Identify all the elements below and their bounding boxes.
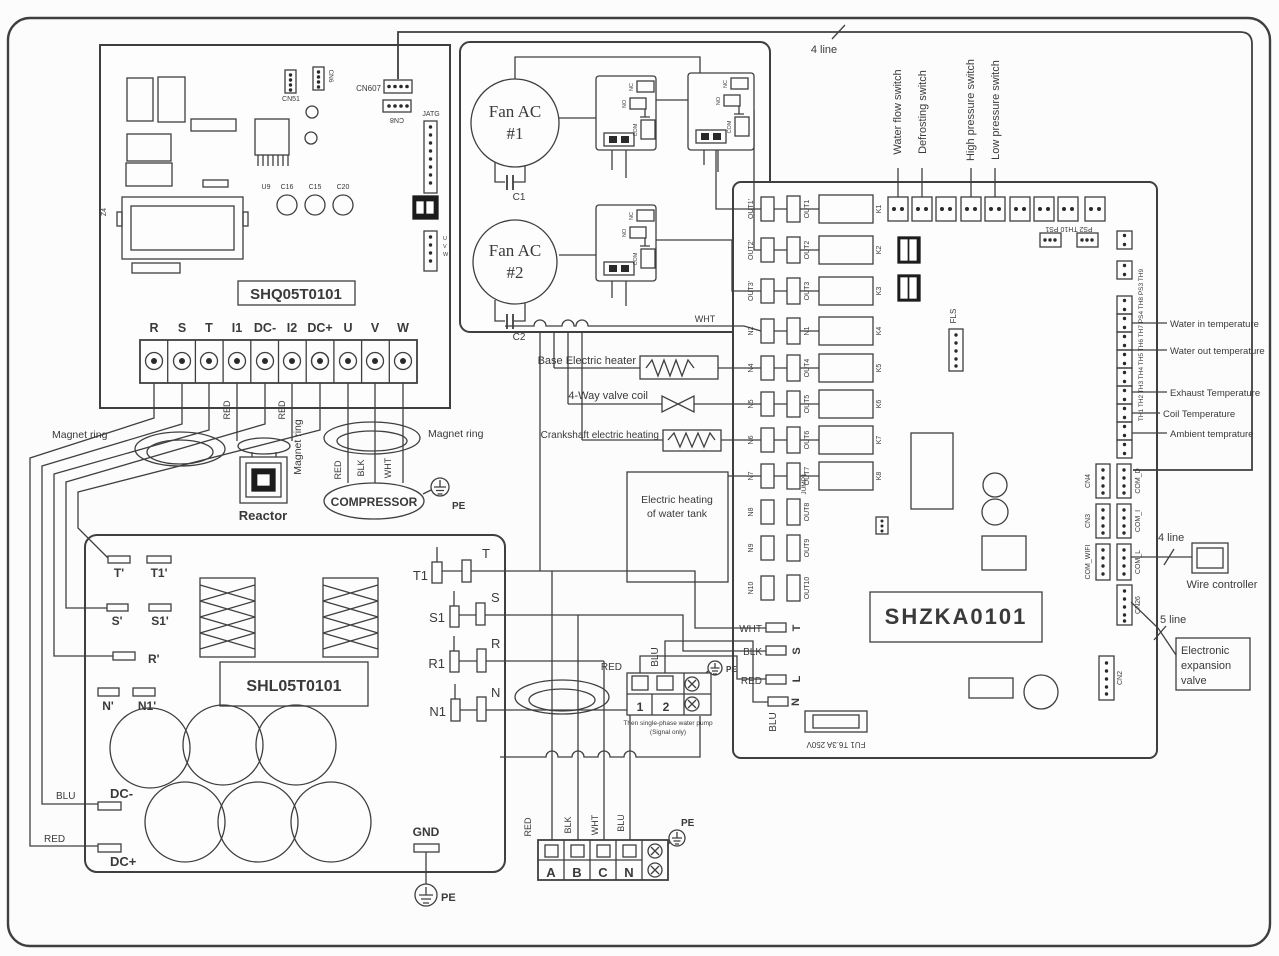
row-label: N8	[748, 507, 755, 516]
valve-symbol	[662, 396, 678, 412]
magnet-ring-pump-inner	[529, 689, 595, 711]
inlet-a: A	[546, 865, 556, 880]
label-coil: Coil Temperature	[1163, 409, 1235, 420]
label-wht-comp: WHT	[383, 457, 393, 478]
strip-label-i2: I2	[287, 321, 297, 335]
label-4way-valve: 4-Way valve coil	[568, 390, 648, 402]
label-cn2: CN2	[1117, 671, 1124, 685]
label-s-prime: S'	[112, 614, 123, 628]
label-cn607: CN607	[356, 84, 381, 93]
label-4line-right: 4 line	[1158, 532, 1184, 544]
label-exhaust: Exhaust Temperature	[1170, 388, 1260, 399]
label-pe-gnd: PE	[441, 892, 456, 904]
label-reactor: Reactor	[239, 508, 287, 523]
label-base-heater: Base Electric heater	[538, 355, 637, 367]
label-cn6: CN6	[327, 69, 334, 82]
label-fan1: Fan AC	[489, 102, 541, 121]
label-t-fuse: T	[482, 546, 490, 561]
label-z4: Z4	[101, 208, 108, 216]
label-u: U	[443, 236, 447, 242]
label-magnet-ring-center: Magnet ring	[292, 419, 304, 475]
label-t1-fuse: T1	[413, 568, 428, 583]
label-eev-1: Electronic	[1181, 645, 1230, 657]
pump-terminal-2: 2	[663, 700, 670, 714]
label-tank-2: of water tank	[647, 508, 708, 520]
fan-2	[473, 220, 557, 304]
label-no: NO	[716, 96, 722, 105]
label-blu-inlet: BLU	[616, 814, 626, 832]
label-t-prime: T'	[114, 566, 124, 580]
label-jump1: JUMP1	[801, 473, 808, 495]
fan-relay-c	[596, 205, 656, 281]
label-s1-fuse: S1	[429, 610, 445, 625]
inlet-c: C	[598, 865, 608, 880]
label-low-pressure-switch: Low pressure switch	[990, 60, 1002, 160]
label-ambient: Ambient temprature	[1170, 429, 1253, 440]
strip-label-r: R	[149, 321, 158, 335]
label-fan1-num: #1	[507, 124, 524, 143]
label-c20: C20	[337, 184, 350, 191]
row-label: N7	[748, 471, 755, 480]
label-com-d: COM_D	[1135, 468, 1142, 493]
label-no: NO	[622, 99, 628, 108]
label-wht-inlet: WHT	[590, 814, 600, 835]
fan-relay-b	[688, 73, 754, 150]
label-cn51: CN51	[282, 96, 300, 103]
pe-symbol-compressor	[431, 478, 449, 496]
label-nc: NC	[629, 212, 635, 220]
heater-zigzag	[646, 360, 694, 376]
wire	[552, 571, 630, 845]
label-red-dc: RED	[44, 834, 65, 845]
row-label: OUT1'	[748, 199, 755, 219]
relay-label: K5	[876, 364, 883, 373]
row-label: OUT5	[804, 395, 811, 414]
label-n-main: N	[790, 698, 802, 706]
label-no: NO	[622, 228, 628, 237]
label-ps-row: PS2 TH10 PS1	[1045, 225, 1092, 232]
label-nc: NC	[629, 83, 635, 91]
label-eev-3: valve	[1181, 675, 1207, 687]
row-label: OUT1	[804, 200, 811, 219]
label-fan2: Fan AC	[489, 241, 541, 260]
label-pe-inlet: PE	[681, 818, 695, 829]
pump-caption-1: Then single-phase water pump	[623, 720, 713, 727]
label-n1-fuse: N1	[429, 704, 446, 719]
wiring-diagram: CN51 CN6 CN607 CN8 JATG U9 C16 C15 C20 Z…	[0, 0, 1279, 956]
label-jatg: JATG	[422, 111, 439, 118]
relay-label: K2	[876, 246, 883, 255]
label-s-fuse: S	[491, 590, 500, 605]
heater-zigzag	[668, 433, 715, 447]
inlet-n: N	[624, 865, 633, 880]
relay-label: K6	[876, 400, 883, 409]
label-fan2-num: #2	[507, 263, 524, 282]
strip-label-dcm: DC-	[254, 321, 276, 335]
label-u9: U9	[262, 184, 271, 191]
label-cn26: CN26	[1135, 596, 1142, 614]
label-5line: 5 line	[1160, 614, 1186, 626]
label-com: COM	[633, 252, 639, 265]
label-w: W	[443, 252, 449, 258]
label-wht-n2: WHT	[695, 314, 716, 324]
row-label: N1	[804, 326, 811, 335]
diagram-canvas: CN51 CN6 CN607 CN8 JATG U9 C16 C15 C20 Z…	[0, 0, 1279, 956]
label-dc-plus: DC+	[110, 854, 137, 869]
label-red-main: RED	[741, 676, 762, 687]
label-n1-prime: N1'	[138, 699, 156, 713]
row-label: N6	[748, 435, 755, 444]
label-water-flow-switch: Water flow switch	[892, 69, 904, 154]
label-red-i1: RED	[222, 400, 232, 420]
row-label: N10	[748, 581, 755, 594]
strip-label-i1: I1	[232, 321, 242, 335]
label-sensor-column: TH1 TH2 TH3 TH4 TH5 TH6 TH7 PS4 TH8 PS3 …	[1138, 269, 1145, 422]
reactor-window	[258, 475, 269, 485]
label-s-main: S	[791, 647, 803, 654]
strip-label-t: T	[205, 321, 213, 335]
wire	[423, 490, 431, 494]
label-cn4: CN4	[1085, 474, 1092, 488]
row-label: OUT6	[804, 431, 811, 450]
label-compressor: COMPRESSOR	[331, 495, 418, 509]
valve-symbol	[678, 396, 694, 412]
main-board-outline	[733, 182, 1157, 758]
strip-label-u: U	[343, 321, 352, 335]
label-t-main: T	[791, 624, 803, 631]
row-label: OUT10	[804, 577, 811, 600]
label-r-fuse: R	[491, 636, 500, 651]
label-magnet-ring-right: Magnet ring	[428, 428, 484, 440]
label-c2: C2	[513, 332, 526, 343]
magnet-ring-left-inner	[147, 440, 213, 464]
main-board-name: SHZKA0101	[885, 604, 1028, 629]
ic-pins	[258, 155, 288, 166]
pump-terminal-1: 1	[637, 700, 644, 714]
label-water-out: Water out temperature	[1170, 346, 1265, 357]
label-c1: C1	[513, 192, 526, 203]
label-t1-prime: T1'	[151, 566, 168, 580]
label-gnd: GND	[413, 825, 440, 839]
label-cn3: CN3	[1085, 514, 1092, 528]
pe-symbol-inlet	[669, 830, 685, 846]
label-cn8: CN8	[390, 116, 404, 123]
label-com-i: COM_I	[1135, 510, 1142, 532]
row-label: OUT2'	[748, 240, 755, 260]
label-blk-inlet: BLK	[563, 816, 573, 833]
label-fls: FLS	[949, 309, 958, 324]
row-label: N9	[748, 543, 755, 552]
label-r1-fuse: R1	[428, 656, 445, 671]
row-label: OUT4	[804, 359, 811, 378]
label-eev-2: expansion	[1181, 660, 1231, 672]
strip-label-dcp: DC+	[307, 321, 332, 335]
relay-label: K4	[876, 327, 883, 336]
label-red-pump: RED	[601, 662, 622, 673]
label-nc: NC	[723, 80, 729, 88]
row-label: OUT2	[804, 241, 811, 260]
label-blu-pump: BLU	[650, 647, 661, 666]
filter-board-name: SHL05T0101	[246, 678, 341, 695]
label-c15: C15	[309, 184, 322, 191]
label-high-pressure-switch: High pressure switch	[965, 59, 977, 161]
label-c16: C16	[281, 184, 294, 191]
relay-label: K8	[876, 472, 883, 481]
label-v: V	[443, 244, 447, 250]
label-blk-main: BLK	[743, 647, 762, 658]
label-n-fuse: N	[491, 685, 500, 700]
label-red-comp: RED	[333, 460, 343, 480]
driver-board-name: SHQ05T0101	[250, 286, 342, 303]
label-l-main: L	[791, 675, 803, 682]
row-label: N4	[748, 363, 755, 372]
pe-symbol-pump	[708, 661, 722, 675]
strip-label-v: V	[371, 321, 380, 335]
strip-label-s: S	[178, 321, 186, 335]
label-com-wifi: COM_WIFI	[1085, 544, 1092, 579]
wire-controller-box-inner	[1197, 548, 1223, 568]
label-red-i2: RED	[277, 400, 287, 420]
label-blu-dc: BLU	[56, 791, 75, 802]
inlet-b: B	[572, 865, 581, 880]
fan-relay-a	[596, 76, 656, 150]
label-tank-1: Electric heating	[641, 494, 713, 506]
label-defrosting-switch: Defrosting switch	[917, 70, 929, 154]
relay-label: K7	[876, 436, 883, 445]
label-blu-main: BLU	[768, 712, 779, 731]
row-label: OUT3	[804, 282, 811, 301]
label-com-l: COM_L	[1135, 550, 1142, 574]
label-s1-prime: S1'	[151, 614, 169, 628]
power-terminal-strip	[140, 340, 417, 383]
pump-caption-2: (Signal only)	[650, 729, 686, 736]
tank-heater-box	[627, 472, 728, 582]
power-inlet-block	[538, 830, 685, 880]
row-label: OUT3'	[748, 281, 755, 301]
label-n-prime: N'	[102, 699, 114, 713]
label-com: COM	[633, 123, 639, 136]
relay-label: K3	[876, 287, 883, 296]
label-pe-pump: PE	[726, 665, 737, 674]
row-label: N5	[748, 399, 755, 408]
row-label: N2	[748, 326, 755, 335]
fan-1	[471, 79, 559, 167]
label-wht-main: WHT	[739, 624, 762, 635]
label-4line-top: 4 line	[811, 44, 837, 56]
row-label: OUT8	[804, 503, 811, 522]
label-com: COM	[727, 120, 733, 133]
label-dc-minus: DC-	[110, 786, 133, 801]
magnet-ring-pump	[515, 680, 609, 714]
label-pe-compressor: PE	[452, 501, 466, 512]
label-r-prime: R'	[148, 652, 160, 666]
label-magnet-ring-left: Magnet ring	[52, 429, 108, 441]
row-label: OUT9	[804, 539, 811, 558]
label-red-inlet: RED	[523, 817, 533, 837]
magnet-ring-center	[238, 438, 290, 454]
label-water-in: Water in temperature	[1170, 319, 1259, 330]
label-crank-heater: Crankshaft electric heating	[541, 430, 659, 441]
relay-label: K1	[876, 205, 883, 214]
label-fuse: FU1 T6.3A 250V	[806, 740, 866, 749]
label-wire-controller: Wire controller	[1187, 579, 1258, 591]
strip-label-w: W	[397, 321, 409, 335]
label-blk-comp: BLK	[356, 459, 366, 476]
